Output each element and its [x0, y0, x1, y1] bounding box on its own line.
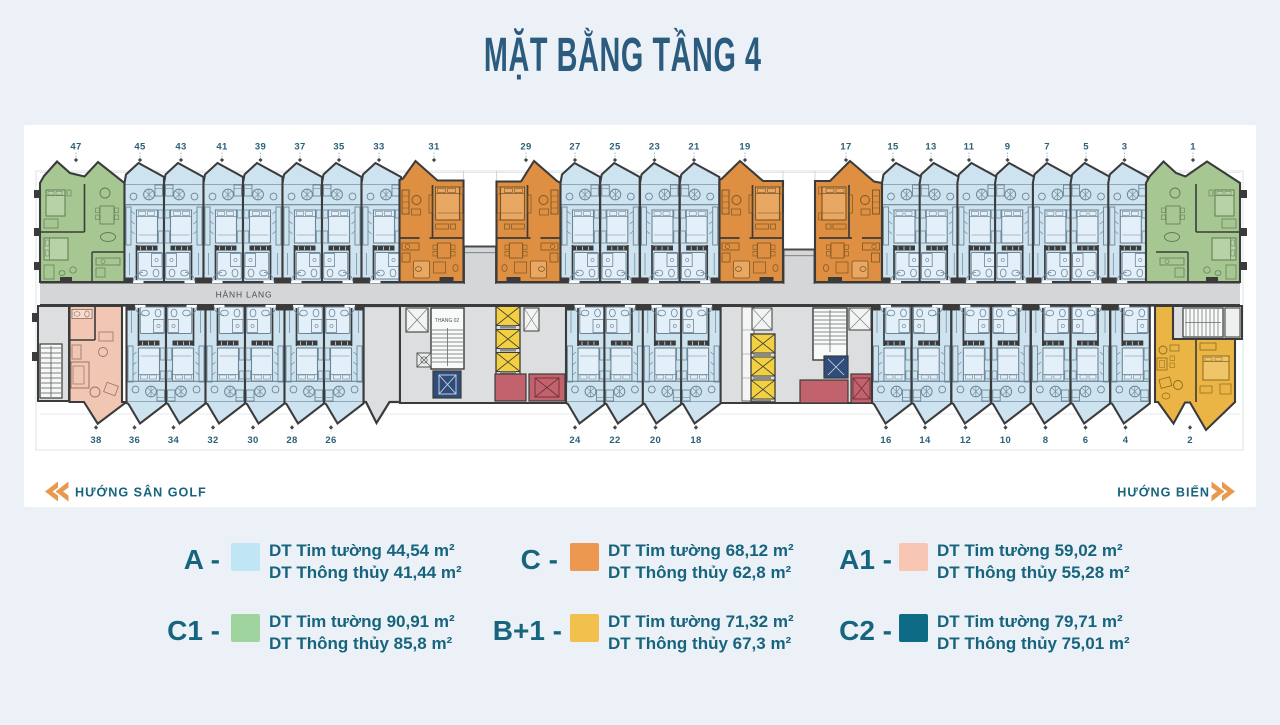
- svg-text:36: 36: [129, 435, 140, 446]
- svg-text:27: 27: [569, 142, 580, 153]
- svg-text:DT Thông thủy 55,28 m²: DT Thông thủy 55,28 m²: [937, 563, 1130, 582]
- svg-text:8: 8: [1043, 435, 1049, 446]
- svg-text:16: 16: [880, 435, 891, 446]
- svg-text:29: 29: [520, 142, 531, 153]
- svg-text:DT Tim tường 59,02 m²: DT Tim tường 59,02 m²: [937, 541, 1123, 560]
- svg-text:DT Thông thủy 41,44 m²: DT Thông thủy 41,44 m²: [269, 563, 462, 582]
- svg-text:18: 18: [690, 435, 701, 446]
- svg-text:1: 1: [1190, 142, 1196, 153]
- svg-text:26: 26: [325, 435, 336, 446]
- svg-text:32: 32: [207, 435, 218, 446]
- svg-text:DT Tim tường 79,71 m²: DT Tim tường 79,71 m²: [937, 612, 1123, 631]
- svg-text:28: 28: [286, 435, 297, 446]
- svg-text:B+1 -: B+1 -: [493, 615, 562, 646]
- svg-text:DT Thông thủy 67,3 m²: DT Thông thủy 67,3 m²: [608, 634, 792, 653]
- svg-text:9: 9: [1005, 142, 1011, 153]
- svg-text:13: 13: [925, 142, 936, 153]
- svg-text:A1 -: A1 -: [839, 544, 892, 575]
- svg-text:31: 31: [428, 142, 440, 153]
- svg-text:THANG 02: THANG 02: [435, 318, 460, 324]
- svg-text:24: 24: [569, 435, 581, 446]
- svg-text:41: 41: [216, 142, 228, 153]
- svg-text:C1 -: C1 -: [167, 615, 220, 646]
- svg-text:C -: C -: [521, 544, 558, 575]
- svg-text:15: 15: [887, 142, 899, 153]
- svg-text:DT Tim tường 71,32 m²: DT Tim tường 71,32 m²: [608, 612, 794, 631]
- svg-text:47: 47: [70, 142, 81, 153]
- svg-text:11: 11: [964, 142, 975, 153]
- svg-text:21: 21: [688, 142, 700, 153]
- svg-text:43: 43: [175, 142, 186, 153]
- svg-text:14: 14: [919, 435, 931, 446]
- svg-text:C2 -: C2 -: [839, 615, 892, 646]
- svg-text:HƯỚNG SÂN GOLF: HƯỚNG SÂN GOLF: [75, 485, 207, 500]
- svg-text:38: 38: [90, 435, 101, 446]
- svg-text:2: 2: [1187, 435, 1193, 446]
- svg-text:DT Tim tường 44,54 m²: DT Tim tường 44,54 m²: [269, 541, 455, 560]
- svg-text:3: 3: [1122, 142, 1128, 153]
- svg-text:A -: A -: [184, 544, 220, 575]
- svg-text:HƯỚNG BIỂN: HƯỚNG BIỂN: [1117, 485, 1210, 500]
- svg-text:4: 4: [1123, 435, 1129, 446]
- svg-text:MẶT BẰNG TẦNG 4: MẶT BẰNG TẦNG 4: [484, 29, 762, 82]
- svg-text:33: 33: [373, 142, 384, 153]
- svg-text:34: 34: [168, 435, 180, 446]
- svg-text:DT Thông thủy 85,8 m²: DT Thông thủy 85,8 m²: [269, 634, 453, 653]
- svg-text:35: 35: [333, 142, 345, 153]
- svg-text:6: 6: [1083, 435, 1089, 446]
- svg-text:10: 10: [1000, 435, 1011, 446]
- svg-text:DT Thông thủy 75,01 m²: DT Thông thủy 75,01 m²: [937, 634, 1130, 653]
- svg-text:20: 20: [650, 435, 661, 446]
- svg-text:DT Tim tường 68,12 m²: DT Tim tường 68,12 m²: [608, 541, 794, 560]
- svg-text:25: 25: [609, 142, 621, 153]
- svg-text:39: 39: [255, 142, 266, 153]
- svg-text:23: 23: [649, 142, 660, 153]
- svg-text:DT Tim tường 90,91 m²: DT Tim tường 90,91 m²: [269, 612, 455, 631]
- svg-text:19: 19: [739, 142, 750, 153]
- svg-text:45: 45: [134, 142, 146, 153]
- svg-text:37: 37: [294, 142, 305, 153]
- svg-text:12: 12: [960, 435, 971, 446]
- svg-text:DT Thông thủy 62,8 m²: DT Thông thủy 62,8 m²: [608, 563, 792, 582]
- svg-text:22: 22: [609, 435, 620, 446]
- svg-text:17: 17: [840, 142, 851, 153]
- svg-text:5: 5: [1083, 142, 1089, 153]
- svg-text:7: 7: [1044, 142, 1050, 153]
- svg-text:HÀNH LANG: HÀNH LANG: [216, 290, 273, 300]
- svg-text:30: 30: [247, 435, 258, 446]
